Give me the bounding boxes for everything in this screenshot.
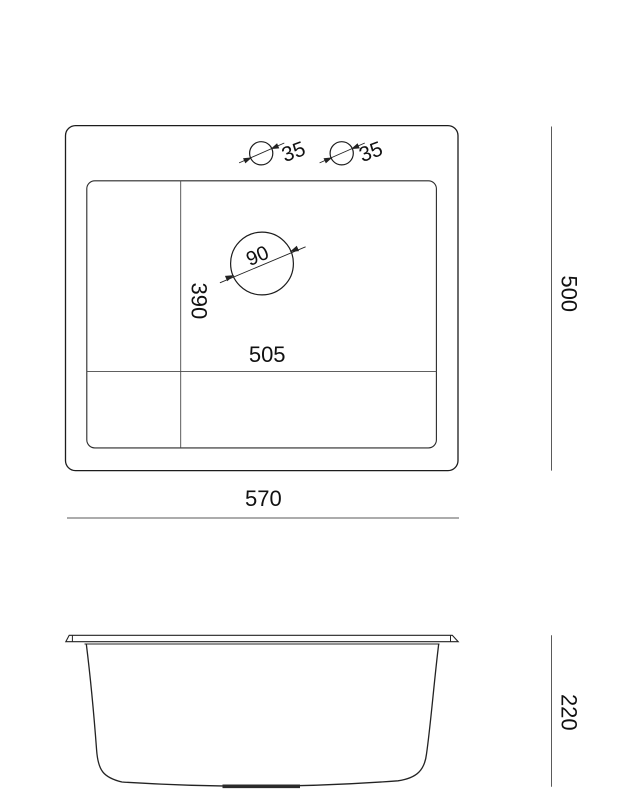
- svg-text:35: 35: [356, 137, 386, 167]
- svg-text:505: 505: [249, 342, 286, 367]
- svg-text:90: 90: [243, 242, 272, 271]
- svg-text:35: 35: [279, 137, 309, 167]
- svg-text:390: 390: [186, 283, 211, 320]
- svg-text:220: 220: [557, 694, 582, 731]
- svg-text:570: 570: [245, 486, 282, 511]
- svg-text:500: 500: [557, 275, 582, 312]
